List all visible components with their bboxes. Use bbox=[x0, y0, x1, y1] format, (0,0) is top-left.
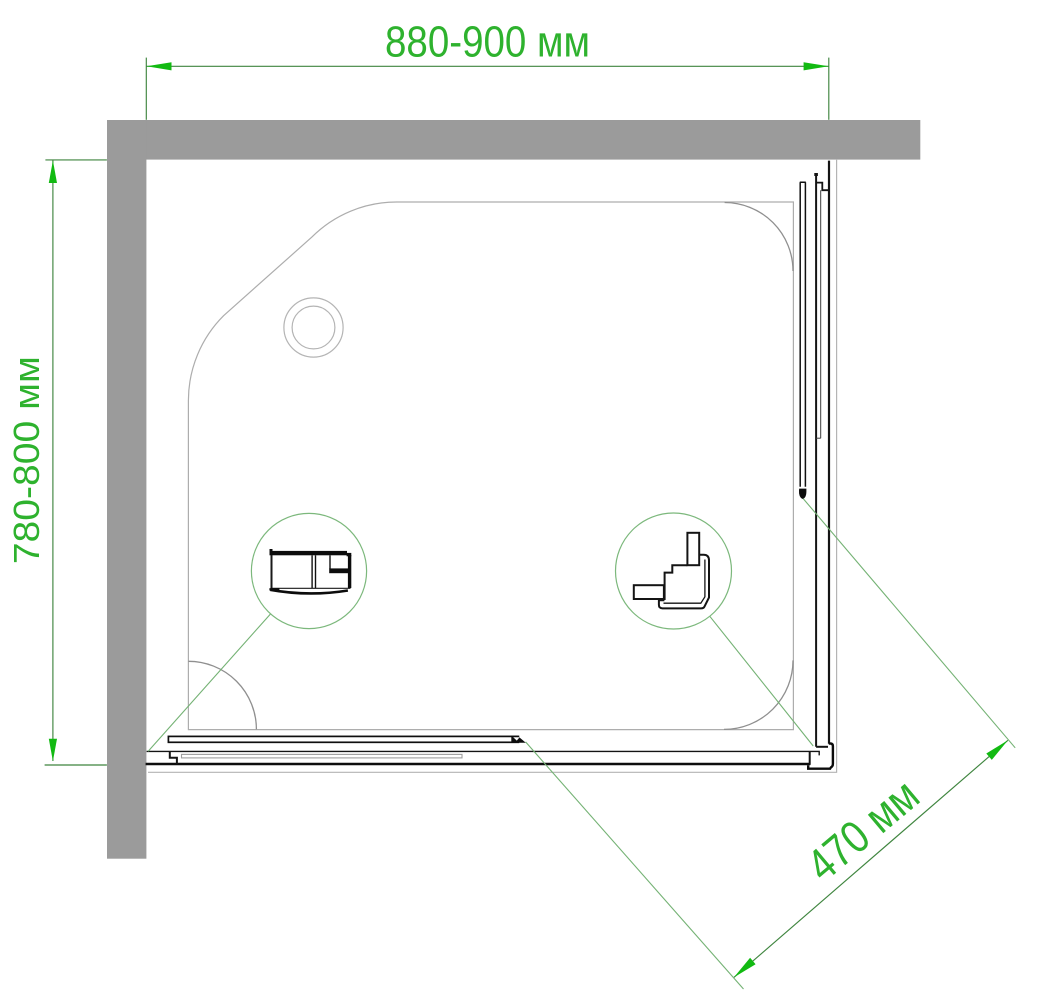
svg-text:470 мм: 470 мм bbox=[797, 769, 929, 891]
svg-text:880-900 мм: 880-900 мм bbox=[385, 18, 590, 67]
svg-text:780-800 мм: 780-800 мм bbox=[6, 356, 47, 564]
